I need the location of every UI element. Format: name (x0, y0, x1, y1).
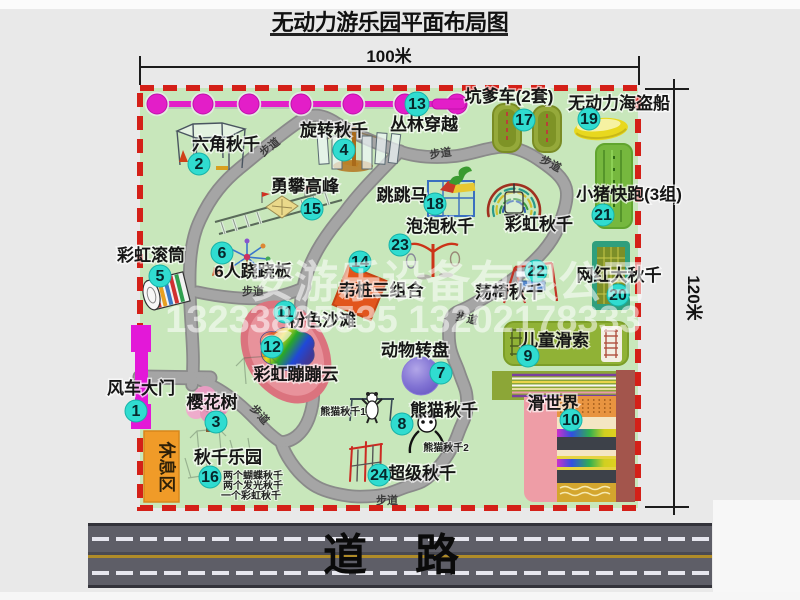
svg-text:彩虹秋千: 彩虹秋千 (504, 214, 573, 234)
svg-text:动物转盘: 动物转盘 (381, 340, 449, 360)
svg-text:坑爹车(2套): 坑爹车(2套) (465, 86, 554, 106)
svg-text:3: 3 (212, 414, 221, 431)
svg-text:勇攀高峰: 勇攀高峰 (271, 176, 340, 196)
svg-text:路: 路 (415, 531, 460, 580)
svg-text:9: 9 (524, 348, 533, 365)
svg-text:2: 2 (195, 156, 204, 173)
svg-text:步道: 步道 (376, 493, 398, 507)
svg-text:小猪快跑(3组): 小猪快跑(3组) (576, 184, 682, 204)
svg-text:13233805535 13202178333: 13233805535 13202178333 (165, 299, 641, 341)
svg-text:彩虹滚筒: 彩虹滚筒 (116, 245, 185, 265)
svg-text:5: 5 (156, 268, 165, 285)
svg-text:跳跳马: 跳跳马 (377, 185, 428, 205)
svg-text:8: 8 (398, 416, 407, 433)
svg-text:1: 1 (132, 403, 141, 420)
svg-text:17: 17 (515, 112, 533, 129)
svg-text:泡泡秋千: 泡泡秋千 (406, 216, 474, 236)
svg-text:21: 21 (594, 207, 612, 224)
svg-text:6: 6 (218, 245, 227, 262)
svg-text:樱花树: 樱花树 (187, 392, 238, 412)
svg-text:丛林穿越: 丛林穿越 (390, 114, 459, 134)
svg-text:100米: 100米 (366, 46, 412, 66)
svg-text:熊猫秋千2: 熊猫秋千2 (423, 441, 469, 454)
svg-text:休息区: 休息区 (157, 441, 177, 493)
svg-text:15: 15 (303, 201, 321, 218)
svg-text:7: 7 (437, 365, 446, 382)
svg-text:无动力游乐园平面布局图: 无动力游乐园平面布局图 (272, 10, 509, 35)
svg-text:一个彩虹秋千: 一个彩虹秋千 (221, 489, 281, 502)
svg-text:10: 10 (562, 412, 580, 429)
svg-text:24: 24 (370, 467, 388, 484)
svg-text:超级秋千: 超级秋千 (388, 463, 456, 483)
svg-text:23: 23 (391, 237, 409, 254)
svg-text:12: 12 (263, 339, 281, 356)
svg-text:六角秋千: 六角秋千 (192, 134, 260, 154)
svg-text:秋千乐园: 秋千乐园 (194, 447, 262, 467)
svg-text:道: 道 (323, 531, 367, 580)
svg-text:120米: 120米 (684, 275, 704, 321)
svg-text:熊猫秋千: 熊猫秋千 (410, 400, 478, 420)
svg-text:13: 13 (408, 96, 426, 113)
svg-text:18: 18 (426, 196, 444, 213)
svg-text:彩虹蹦蹦云: 彩虹蹦蹦云 (253, 364, 339, 384)
svg-text:风车大门: 风车大门 (107, 378, 175, 398)
svg-text:熊猫秋千1: 熊猫秋千1 (320, 405, 366, 418)
svg-text:16: 16 (201, 469, 219, 486)
svg-text:旋转秋千: 旋转秋千 (299, 120, 368, 140)
svg-text:4: 4 (340, 142, 349, 159)
svg-text:19: 19 (580, 111, 598, 128)
